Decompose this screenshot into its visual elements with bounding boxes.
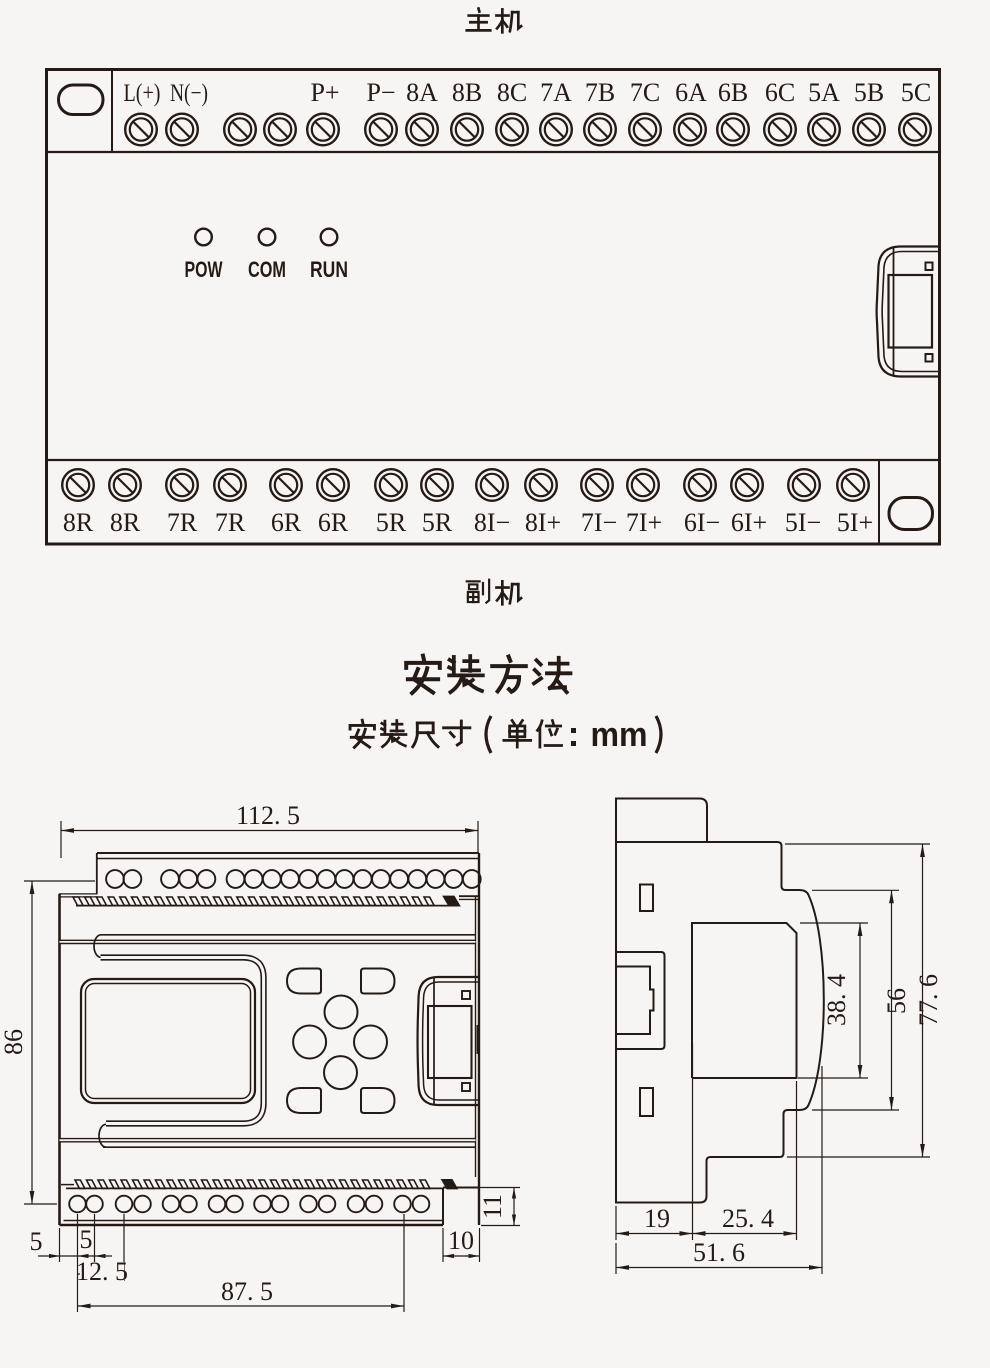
svg-text:19: 19 xyxy=(644,1204,670,1233)
svg-text:8I+: 8I+ xyxy=(525,508,561,537)
svg-text:112. 5: 112. 5 xyxy=(236,801,300,830)
svg-text:5B: 5B xyxy=(854,78,884,107)
svg-text:77. 6: 77. 6 xyxy=(914,974,943,1026)
svg-text:5A: 5A xyxy=(808,78,840,107)
svg-text:7R: 7R xyxy=(215,508,246,537)
svg-text:P+: P+ xyxy=(310,78,339,107)
svg-text:5C: 5C xyxy=(901,78,931,107)
svg-text:COM: COM xyxy=(248,257,286,282)
svg-text:6C: 6C xyxy=(765,78,795,107)
svg-text:L(+): L(+) xyxy=(124,80,161,107)
svg-text:8C: 8C xyxy=(497,78,527,107)
svg-text:6A: 6A xyxy=(675,78,707,107)
svg-text:5I−: 5I− xyxy=(785,508,821,537)
svg-text:7I+: 7I+ xyxy=(626,508,662,537)
svg-text:5: 5 xyxy=(80,1225,93,1254)
svg-text:5I+: 5I+ xyxy=(837,508,873,537)
svg-text:6R: 6R xyxy=(271,508,302,537)
svg-text:38. 4: 38. 4 xyxy=(822,974,851,1026)
svg-text:8B: 8B xyxy=(452,78,482,107)
svg-text:7I−: 7I− xyxy=(581,508,617,537)
svg-text:mm: mm xyxy=(591,716,648,754)
svg-text:N(−): N(−) xyxy=(170,80,208,107)
svg-text:8R: 8R xyxy=(63,508,94,537)
svg-text:87. 5: 87. 5 xyxy=(221,1277,273,1306)
svg-text:11: 11 xyxy=(478,1194,507,1219)
svg-text:5: 5 xyxy=(30,1227,43,1256)
svg-text:7A: 7A xyxy=(540,78,572,107)
svg-text:P−: P− xyxy=(366,78,395,107)
svg-text:5R: 5R xyxy=(422,508,453,537)
svg-text:25. 4: 25. 4 xyxy=(722,1204,774,1233)
svg-text:6I−: 6I− xyxy=(684,508,720,537)
svg-text:6I+: 6I+ xyxy=(731,508,767,537)
svg-text:POW: POW xyxy=(185,257,223,282)
svg-text:7B: 7B xyxy=(585,78,615,107)
svg-text:RUN: RUN xyxy=(310,257,348,282)
svg-text:86: 86 xyxy=(0,1029,28,1055)
svg-text:8R: 8R xyxy=(110,508,141,537)
svg-text:6R: 6R xyxy=(318,508,349,537)
svg-text:8A: 8A xyxy=(406,78,438,107)
svg-text:10: 10 xyxy=(448,1226,474,1255)
svg-text:51. 6: 51. 6 xyxy=(693,1238,745,1267)
svg-text:12. 5: 12. 5 xyxy=(76,1257,128,1286)
svg-text:56: 56 xyxy=(882,988,911,1014)
svg-text:7R: 7R xyxy=(167,508,198,537)
svg-text:6B: 6B xyxy=(718,78,748,107)
svg-text:8I−: 8I− xyxy=(474,508,510,537)
svg-text:7C: 7C xyxy=(630,78,660,107)
svg-text:5R: 5R xyxy=(376,508,407,537)
